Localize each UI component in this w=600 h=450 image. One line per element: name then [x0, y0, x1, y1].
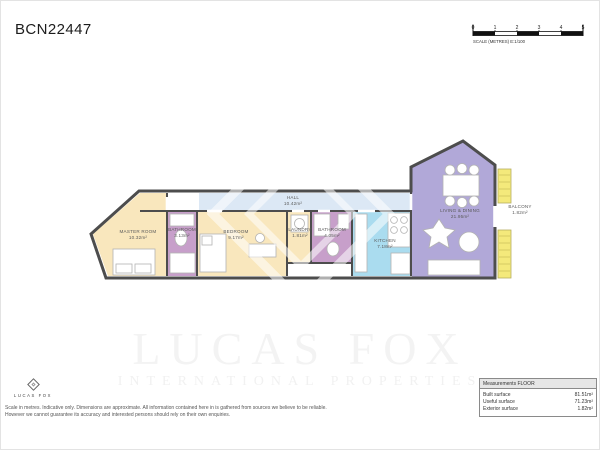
- disclaimer-line2: However we cannot guarantee its accuracy…: [5, 412, 425, 419]
- measurement-row-exterior: Exterior surface 1.82m²: [483, 406, 593, 413]
- dining-chair-2: [457, 164, 467, 174]
- area-bathroom-1: 3.13m²: [174, 233, 190, 238]
- label-hall: HALL: [287, 195, 300, 200]
- measurement-label: Built surface: [483, 392, 511, 399]
- kitchen-burner-2: [401, 217, 408, 224]
- label-laundry: LAUNDRY: [288, 227, 311, 232]
- area-balcony: 1.82m²: [512, 210, 528, 215]
- dining-chair-6: [469, 196, 479, 206]
- living-round-table: [459, 232, 479, 252]
- bedroom-chair: [256, 234, 265, 243]
- measurement-label: Useful surface: [483, 399, 515, 406]
- area-bathroom-2: 4.05m²: [324, 233, 340, 238]
- area-hall: 10.42m²: [284, 201, 303, 206]
- measurements-header: Measurements FLOOR: [480, 379, 596, 389]
- label-bathroom-1: BATHROOM: [168, 227, 196, 232]
- area-master-room: 10.32m²: [129, 235, 148, 240]
- measurements-table: Measurements FLOOR Built surface 81.51m²…: [479, 378, 597, 417]
- area-kitchen: 7.18m²: [377, 244, 393, 249]
- lucas-fox-logo: LUCAS FOX: [11, 380, 55, 398]
- page: BCN22447 0 1 2 3 4 5 SCALE (METRES) E:1/…: [0, 0, 600, 450]
- lucas-fox-diamond-icon: [27, 378, 40, 391]
- kitchen-burner-3: [391, 227, 398, 234]
- dining-chair-3: [469, 165, 479, 175]
- living-sofa: [428, 260, 480, 275]
- dining-table: [443, 175, 479, 196]
- bathroom1-shower: [170, 253, 195, 273]
- bedroom-bed-pillow: [202, 236, 212, 245]
- label-bathroom-2: BATHROOM: [318, 227, 346, 232]
- balcony-strip-upper: [498, 169, 511, 203]
- bathroom2-toilet: [327, 242, 339, 256]
- measurement-label: Exterior surface: [483, 406, 518, 413]
- measurement-row-built: Built surface 81.51m²: [483, 392, 593, 399]
- area-living-dining: 21.95m²: [451, 214, 470, 219]
- kitchen-burner-4: [401, 227, 408, 234]
- area-bedroom: 9.17m²: [228, 235, 244, 240]
- measurement-value: 1.82m²: [577, 406, 593, 413]
- balcony: [498, 169, 511, 278]
- dining-chair-4: [445, 196, 455, 206]
- disclaimer: Scale in metres. Indicative only. Dimens…: [5, 405, 425, 418]
- kitchen-appliance: [391, 253, 410, 274]
- label-bedroom: BEDROOM: [223, 229, 248, 234]
- bathroom1-sink: [170, 214, 194, 226]
- dining-chair-5: [457, 198, 467, 208]
- label-kitchen: KITCHEN: [374, 238, 396, 243]
- balcony-hatch: [499, 175, 510, 271]
- dining-chair-1: [445, 165, 455, 175]
- label-master-room: MASTER ROOM: [120, 229, 157, 234]
- measurement-value: 71.23m²: [575, 399, 593, 406]
- measurement-value: 81.51m²: [575, 392, 593, 399]
- lucas-fox-logo-text: LUCAS FOX: [11, 393, 55, 398]
- master-bed-pillow-1: [116, 264, 132, 273]
- label-living-dining: LIVING & DINING: [440, 208, 480, 213]
- measurement-row-useful: Useful surface 71.23m²: [483, 399, 593, 406]
- master-bed-pillow-2: [135, 264, 151, 273]
- area-laundry: 1.81m²: [292, 233, 308, 238]
- measurements-body: Built surface 81.51m² Useful surface 71.…: [480, 389, 596, 416]
- label-balcony: BALCONY: [508, 204, 531, 209]
